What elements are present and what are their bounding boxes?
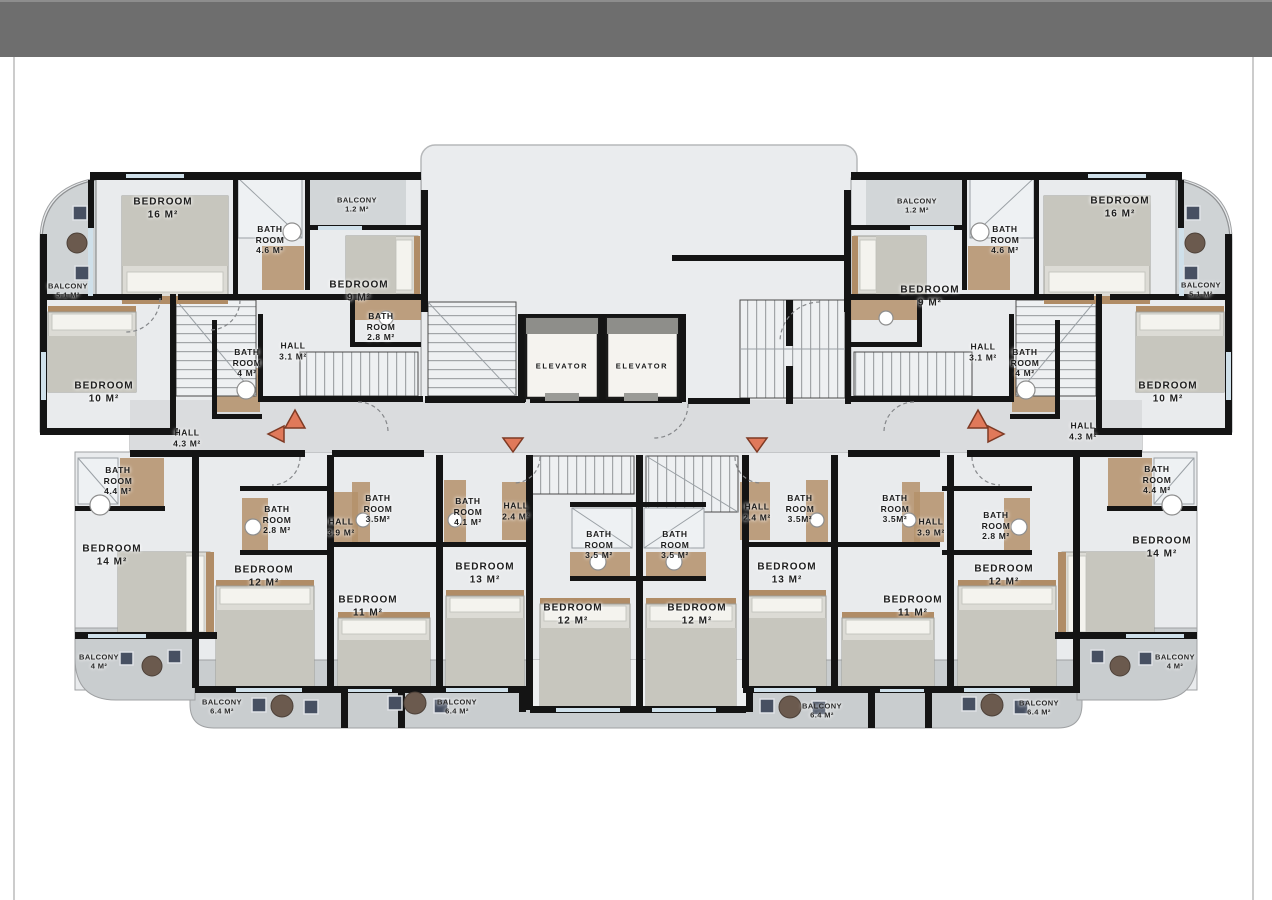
label-bathroom-4-6-right: BATH ROOM 4.6 M² bbox=[991, 224, 1020, 256]
label-bathroom-4-6-left: BATH ROOM 4.6 M² bbox=[256, 224, 285, 256]
label-elevator-2: ELEVATOR bbox=[616, 361, 668, 370]
label-balcony-4-left: BALCONY 4 M² bbox=[79, 653, 119, 672]
label-bathroom-2-8-lower-left: BATH ROOM 2.8 M² bbox=[263, 504, 292, 536]
label-bathroom-4-4-right: BATH ROOM 4.4 M² bbox=[1143, 464, 1172, 496]
label-bedroom-10-left: BEDROOM 10 M² bbox=[74, 381, 133, 406]
label-balcony-1-2-right: BALCONY 1.2 M² bbox=[897, 197, 937, 216]
label-hall-3-1-left: HALL 3.1 M² bbox=[279, 340, 307, 361]
label-balcony-4-right: BALCONY 4 M² bbox=[1155, 653, 1195, 672]
label-balcony-6-4-c: BALCONY 6.4 M² bbox=[802, 702, 842, 721]
label-bathroom-4-left: BATH ROOM 4 M² bbox=[233, 347, 262, 379]
label-bathroom-2-8-lower-right: BATH ROOM 2.8 M² bbox=[982, 510, 1011, 542]
label-bathroom-4-1-center: BATH ROOM 4.1 M² bbox=[454, 496, 483, 528]
label-elevator-1: ELEVATOR bbox=[536, 361, 588, 370]
label-bathroom-2-8-upper-left: BATH ROOM 2.8 M² bbox=[367, 311, 396, 343]
label-bedroom-14-right: BEDROOM 14 M² bbox=[1132, 536, 1191, 561]
label-bedroom-12-center-2: BEDROOM 12 M² bbox=[667, 603, 726, 628]
label-bathroom-4-4-left: BATH ROOM 4.4 M² bbox=[104, 465, 133, 497]
label-bedroom-14-left: BEDROOM 14 M² bbox=[82, 544, 141, 569]
label-hall-4-3-left: HALL 4.3 M² bbox=[173, 427, 201, 448]
label-hall-2-4-left: HALL 2.4 M² bbox=[502, 500, 530, 521]
label-bathroom-3-5-lower-left: BATH ROOM 3.5M² bbox=[364, 493, 393, 525]
label-hall-3-1-right: HALL 3.1 M² bbox=[969, 341, 997, 362]
label-bathroom-3-5-center-1: BATH ROOM 3.5 M² bbox=[585, 529, 614, 561]
label-bedroom-13-right: BEDROOM 13 M² bbox=[757, 562, 816, 587]
label-bedroom-9-left: BEDROOM 9 M² bbox=[329, 280, 388, 305]
label-bedroom-16-right: BEDROOM 16 M² bbox=[1090, 196, 1149, 221]
label-bathroom-4-right: BATH ROOM 4 M² bbox=[1011, 347, 1040, 379]
label-bathroom-3-5-upper-right: BATH ROOM 3.5M² bbox=[786, 493, 815, 525]
label-bedroom-12-center-1: BEDROOM 12 M² bbox=[543, 603, 602, 628]
label-balcony-5-1-right: BALCONY 5.1 M² bbox=[1181, 281, 1221, 300]
label-bathroom-3-5-center-2: BATH ROOM 3.5 M² bbox=[661, 529, 690, 561]
label-bedroom-11-left: BEDROOM 11 M² bbox=[338, 595, 397, 620]
label-balcony-6-4-d: BALCONY 6.4 M² bbox=[1019, 699, 1059, 718]
label-bedroom-16-left: BEDROOM 16 M² bbox=[133, 197, 192, 222]
label-hall-3-9-left: HALL 3.9 M² bbox=[327, 516, 355, 537]
floor-plan-drawing bbox=[0, 0, 1272, 900]
label-balcony-1-2-left: BALCONY 1.2 M² bbox=[337, 196, 377, 215]
label-balcony-5-1-left: BALCONY 5.1 M² bbox=[48, 282, 88, 301]
floor-plan-page: BEDROOM 16 M² BATH ROOM 4.6 M² BALCONY 1… bbox=[0, 0, 1272, 900]
label-balcony-6-4-b: BALCONY 6.4 M² bbox=[437, 698, 477, 717]
floor-plan: BEDROOM 16 M² BATH ROOM 4.6 M² BALCONY 1… bbox=[0, 0, 1272, 900]
label-bathroom-3-5-lower-right: BATH ROOM 3.5M² bbox=[881, 493, 910, 525]
label-bedroom-9-right: BEDROOM 9 M² bbox=[900, 285, 959, 310]
label-bedroom-11-right: BEDROOM 11 M² bbox=[883, 595, 942, 620]
label-hall-4-3-right: HALL 4.3 M² bbox=[1069, 420, 1097, 441]
label-hall-2-4-right: HALL 2.4 M² bbox=[743, 501, 771, 522]
label-bedroom-13-left: BEDROOM 13 M² bbox=[455, 562, 514, 587]
label-bedroom-12-lower-right: BEDROOM 12 M² bbox=[974, 564, 1033, 589]
label-hall-3-9-right: HALL 3.9 M² bbox=[917, 516, 945, 537]
label-balcony-6-4-a: BALCONY 6.4 M² bbox=[202, 698, 242, 717]
label-bedroom-12-lower-left: BEDROOM 12 M² bbox=[234, 565, 293, 590]
label-bedroom-10-right: BEDROOM 10 M² bbox=[1138, 381, 1197, 406]
